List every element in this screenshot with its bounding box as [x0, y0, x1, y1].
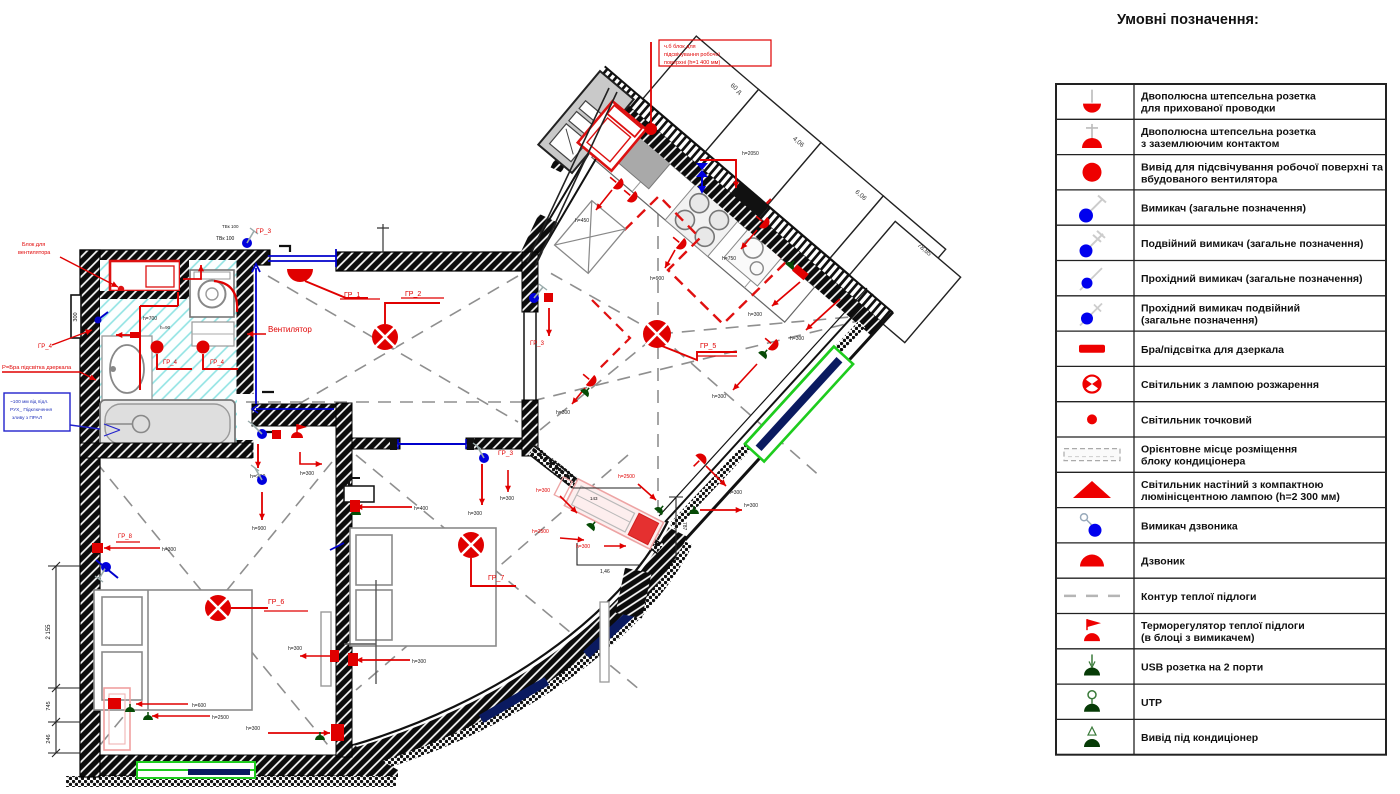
svg-text:h=300: h=300: [300, 471, 314, 477]
svg-text:h=600: h=600: [192, 703, 206, 709]
svg-text:h=900: h=900: [252, 526, 266, 532]
svg-text:Вимикач (загальне позначення): Вимикач (загальне позначення): [1141, 203, 1306, 215]
svg-text:Вентилятор: Вентилятор: [268, 325, 312, 334]
svg-text:h=300: h=300: [500, 496, 514, 502]
svg-text:Вивід для підсвічування робочо: Вивід для підсвічування робочої поверхні…: [1141, 161, 1383, 173]
svg-text:ГР_4: ГР_4: [163, 360, 178, 366]
svg-text:UTP: UTP: [1141, 697, 1162, 709]
svg-text:Бра/підсвітка для дзеркала: Бра/підсвітка для дзеркала: [1141, 344, 1284, 356]
svg-text:ч.б блок для: ч.б блок для: [664, 44, 696, 50]
svg-text:Світильник настіний з компактн: Світильник настіний з компактною: [1141, 479, 1324, 491]
svg-text:поверхні (h=1 400 мм): поверхні (h=1 400 мм): [664, 60, 720, 66]
svg-text:Світильник точковий: Світильник точковий: [1141, 414, 1252, 426]
svg-text:ГР_5: ГР_5: [700, 343, 716, 350]
svg-text:(загальне позначення): (загальне позначення): [1141, 314, 1258, 326]
svg-text:підсвічування робочої: підсвічування робочої: [664, 52, 721, 58]
svg-text:h=300: h=300: [790, 336, 804, 342]
svg-text:h=300: h=300: [412, 659, 426, 665]
svg-text:Двополюсна штепсельна розетка: Двополюсна штепсельна розетка: [1141, 126, 1316, 138]
svg-text:h=2500: h=2500: [532, 529, 549, 535]
svg-text:Умовні позначення:: Умовні позначення:: [1117, 12, 1259, 28]
svg-text:Дзвоник: Дзвоник: [1141, 556, 1185, 568]
svg-text:745: 745: [46, 701, 52, 710]
svg-text:h=300: h=300: [536, 488, 550, 494]
svg-text:2 155: 2 155: [46, 624, 52, 640]
svg-text:h=300: h=300: [246, 726, 260, 732]
svg-text:Подвійний вимикач (загальне по: Подвійний вимикач (загальне позначення): [1141, 238, 1363, 250]
svg-text:h=300: h=300: [744, 503, 758, 509]
svg-text:Контур теплої підлоги: Контур теплої підлоги: [1141, 591, 1256, 603]
svg-text:(в блоці з вимикачем): (в блоці з вимикачем): [1141, 632, 1255, 644]
svg-text:h=300: h=300: [288, 646, 302, 652]
svg-text:ТВк 100: ТВк 100: [222, 224, 239, 229]
svg-text:РУХ_ Підключення: РУХ_ Підключення: [10, 407, 53, 413]
svg-text:ГР_7: ГР_7: [488, 575, 504, 582]
svg-text:h=300: h=300: [162, 547, 176, 553]
svg-text:ГР_2: ГР_2: [405, 291, 421, 298]
svg-text:h=450: h=450: [575, 218, 589, 224]
svg-text:ГР_4: ГР_4: [38, 344, 53, 350]
svg-text:h=300: h=300: [576, 544, 590, 550]
svg-text:ГР_6: ГР_6: [268, 599, 284, 606]
svg-text:Прохідний вимикач (загальне по: Прохідний вимикач (загальне позначення): [1141, 273, 1363, 285]
svg-text:143: 143: [590, 496, 598, 501]
svg-text:h=2050: h=2050: [742, 151, 759, 157]
svg-text:Двополюсна штепсельна розетка: Двополюсна штепсельна розетка: [1141, 91, 1316, 103]
svg-text:h=750: h=750: [722, 256, 736, 262]
svg-text:Терморегулятор теплої підлоги: Терморегулятор теплої підлоги: [1141, 620, 1305, 632]
svg-text:блоку кондиціонера: блоку кондиціонера: [1141, 456, 1246, 468]
svg-text:~100 мм від підл.: ~100 мм від підл.: [10, 399, 48, 405]
svg-text:h=300: h=300: [468, 511, 482, 517]
svg-text:787: 787: [681, 522, 687, 531]
svg-text:для прихованої проводки: для прихованої проводки: [1141, 103, 1276, 115]
svg-text:h=300: h=300: [748, 312, 762, 318]
svg-text:ГР_3: ГР_3: [256, 228, 271, 235]
svg-text:Світильник з лампою розжарення: Світильник з лампою розжарення: [1141, 379, 1319, 391]
svg-text:ГР_3: ГР_3: [530, 341, 545, 347]
svg-text:ГР_4: ГР_4: [210, 360, 225, 366]
svg-text:вбудованого вентилятора: вбудованого вентилятора: [1141, 173, 1278, 185]
svg-text:h=300: h=300: [728, 490, 742, 496]
svg-text:h=2500: h=2500: [618, 474, 635, 480]
svg-text:вентилятора: вентилятора: [18, 250, 51, 256]
svg-text:h=300: h=300: [712, 394, 726, 400]
svg-text:USB розетка на 2 порти: USB розетка на 2 порти: [1141, 661, 1263, 673]
svg-text:h=90: h=90: [160, 325, 171, 330]
svg-text:h=700: h=700: [143, 316, 157, 322]
svg-text:1,46: 1,46: [600, 569, 610, 575]
svg-text:Вимикач дзвоника: Вимикач дзвоника: [1141, 520, 1238, 532]
svg-text:Орієнтовне місце розміщення: Орієнтовне місце розміщення: [1141, 444, 1297, 456]
svg-text:Прохідний вимикач подвійний: Прохідний вимикач подвійний: [1141, 302, 1300, 314]
svg-text:246: 246: [46, 734, 52, 743]
svg-text:ТВк 100: ТВк 100: [216, 236, 235, 242]
svg-text:h=2500: h=2500: [212, 715, 229, 721]
svg-text:люмінісцентною лампою (h=2 300: люмінісцентною лампою (h=2 300 мм): [1141, 491, 1340, 503]
svg-text:ГР_8: ГР_8: [118, 534, 133, 540]
svg-text:h=400: h=400: [414, 506, 428, 512]
svg-text:ГР_3: ГР_3: [498, 450, 513, 457]
svg-text:h=900: h=900: [650, 276, 664, 282]
svg-text:зливу з ПРАЛ: зливу з ПРАЛ: [12, 415, 42, 421]
svg-text:Блок для: Блок для: [22, 242, 45, 248]
svg-text:h=300: h=300: [556, 410, 570, 416]
svg-text:300: 300: [73, 312, 79, 321]
svg-text:Р=Бра підсвітка дзеркала: Р=Бра підсвітка дзеркала: [2, 365, 72, 371]
svg-text:Вивід під кондиціонер: Вивід під кондиціонер: [1141, 732, 1258, 744]
svg-text:з заземлюючим контактом: з заземлюючим контактом: [1141, 138, 1280, 150]
